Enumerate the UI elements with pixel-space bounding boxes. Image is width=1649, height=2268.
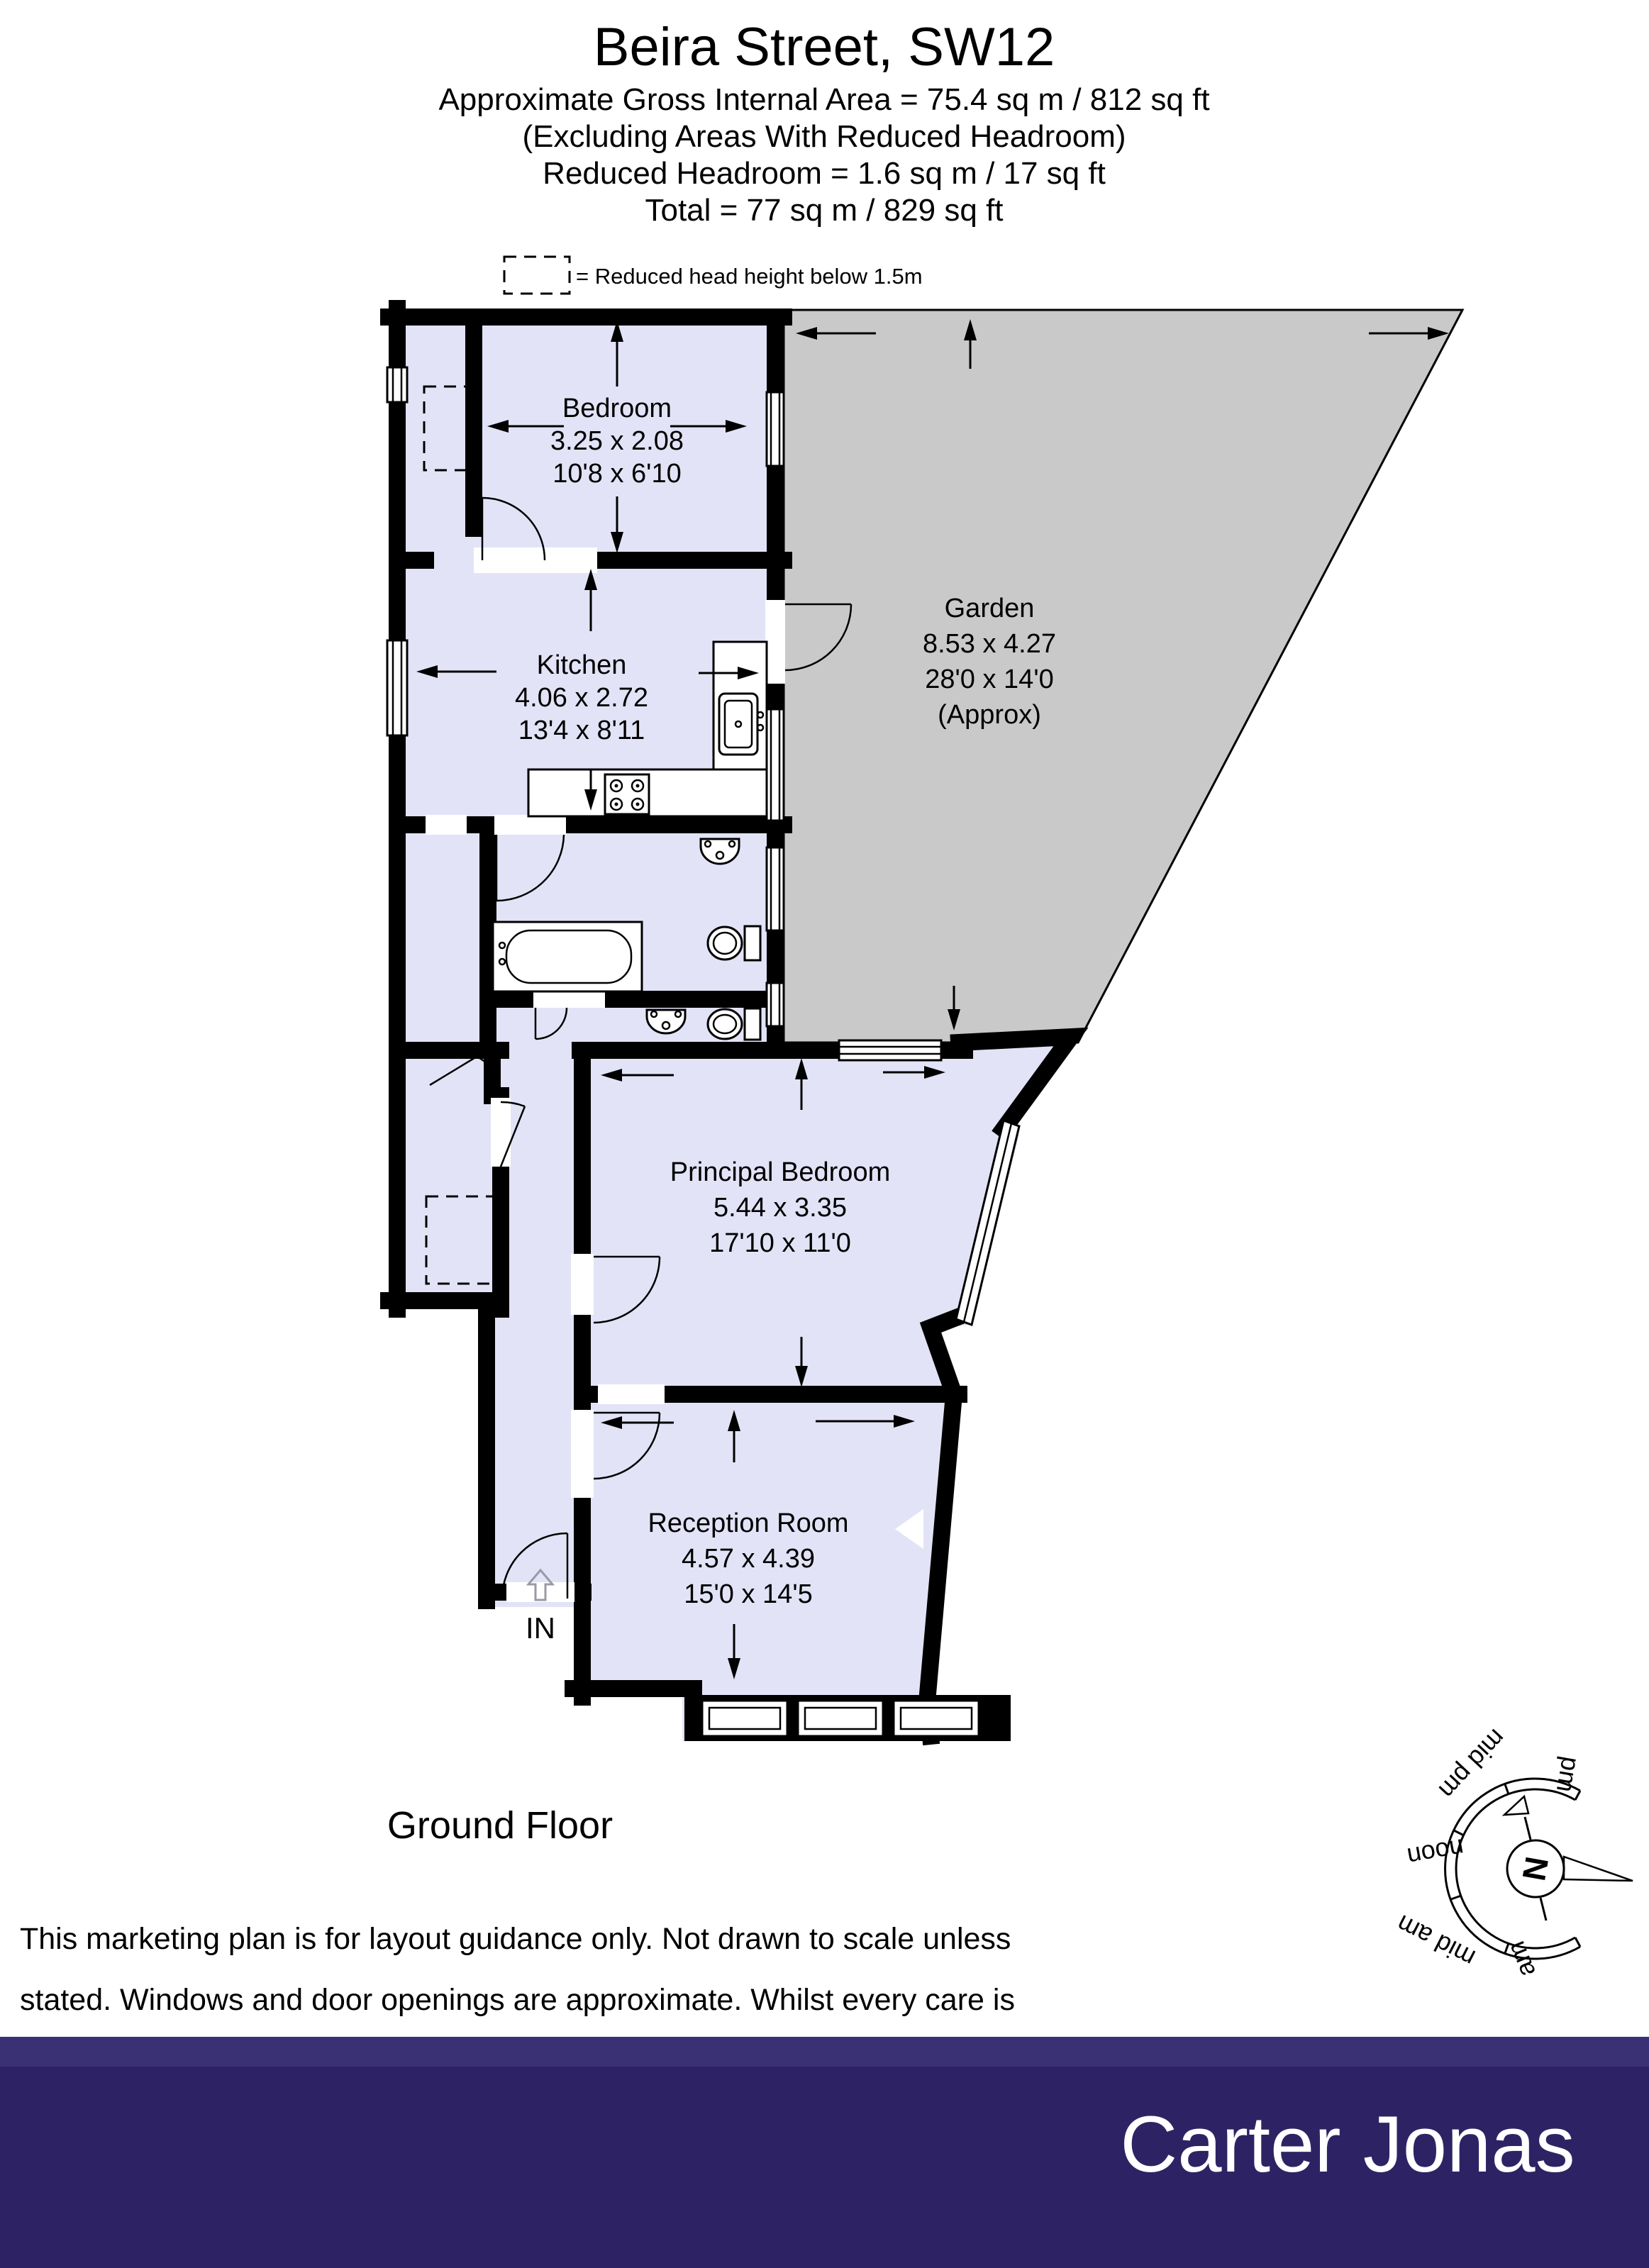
window-bay-1 — [702, 1701, 787, 1736]
compass-label-mid-pm: mid pm — [1433, 1723, 1511, 1804]
reception-room-name: Reception Room — [648, 1508, 848, 1538]
window-principal-bedroom-top — [839, 1040, 941, 1060]
legend-label: = Reduced head height below 1.5m — [576, 264, 923, 289]
bedroom-imperial: 10'8 x 6'10 — [553, 459, 681, 489]
window-bay-3 — [894, 1701, 979, 1736]
principal-bedroom-metric: 5.44 x 3.35 — [714, 1193, 847, 1223]
reception-room-metric: 4.57 x 4.39 — [682, 1544, 815, 1574]
garden-imperial: 28'0 x 14'0 — [925, 665, 1053, 694]
window-kitchen-left — [387, 640, 407, 735]
brand-logo: Carter Jonas — [1120, 2100, 1575, 2189]
compass-label-mid-am: mid am — [1392, 1909, 1479, 1973]
compass-label-pm: pm — [1551, 1755, 1586, 1794]
bedroom-name: Bedroom — [562, 394, 672, 423]
bath-icon — [493, 922, 642, 991]
kitchen-imperial: 13'4 x 8'11 — [518, 716, 645, 745]
toilet-icon — [708, 926, 760, 960]
legend: = Reduced head height below 1.5m — [504, 257, 923, 294]
subtitle-line-4: Total = 77 sq m / 829 sq ft — [645, 193, 1003, 228]
window-kitchen-right — [767, 709, 784, 821]
sink-icon — [647, 1010, 685, 1033]
entrance-hall-area — [495, 1309, 582, 1607]
compass-wedge-icon — [1504, 1796, 1528, 1815]
reception-room-imperial: 15'0 x 14'5 — [684, 1579, 812, 1609]
compass-rose: N pm mid pm noon mid am am — [1392, 1723, 1633, 1981]
window-bay-2 — [798, 1701, 883, 1736]
garden-note: (Approx) — [938, 700, 1041, 730]
window-bathroom-right — [767, 847, 784, 930]
subtitle-line-2: (Excluding Areas With Reduced Headroom) — [522, 119, 1126, 154]
floor-label: Ground Floor — [387, 1804, 613, 1847]
window-hall-left — [387, 367, 407, 402]
principal-bedroom-imperial: 17'10 x 11'0 — [709, 1228, 851, 1258]
footer-bar-top-strip — [0, 2037, 1649, 2067]
entrance-label: IN — [526, 1611, 555, 1645]
disclaimer-line-2: stated. Windows and door openings are ap… — [20, 1983, 1015, 2017]
legend-swatch-reduced-headroom — [504, 257, 570, 294]
window-bedroom-right — [767, 392, 784, 466]
footer: Carter Jonas — [0, 2037, 1649, 2268]
bedroom-metric: 3.25 x 2.08 — [550, 426, 684, 456]
sink-icon — [719, 694, 763, 755]
principal-bedroom-name: Principal Bedroom — [670, 1157, 890, 1187]
hob-icon — [605, 774, 649, 814]
north-needle-icon — [1564, 1857, 1633, 1881]
kitchen-metric: 4.06 x 2.72 — [515, 683, 648, 713]
window-wc-right — [767, 983, 784, 1026]
garden-area — [784, 310, 1462, 1043]
floorplan-page: Beira Street, SW12 Approximate Gross Int… — [0, 0, 1649, 2268]
toilet-icon — [708, 1008, 760, 1040]
kitchen-name: Kitchen — [537, 650, 627, 680]
floorplan-canvas: Beira Street, SW12 Approximate Gross Int… — [0, 0, 1649, 2268]
garden-metric: 8.53 x 4.27 — [923, 629, 1056, 659]
floor-plan: IN Bedroom 3.25 x 2.08 10'8 x 6'10 Kitch… — [387, 308, 1462, 1741]
bedroom-label: Bedroom 3.25 x 2.08 10'8 x 6'10 — [550, 394, 684, 489]
disclaimer-line-1: This marketing plan is for layout guidan… — [20, 1922, 1011, 1956]
garden-name: Garden — [945, 594, 1035, 623]
page-title: Beira Street, SW12 — [594, 17, 1055, 77]
header: Beira Street, SW12 Approximate Gross Int… — [438, 17, 1209, 228]
sink-icon — [701, 839, 739, 864]
subtitle-line-1: Approximate Gross Internal Area = 75.4 s… — [438, 82, 1209, 117]
subtitle-line-3: Reduced Headroom = 1.6 sq m / 17 sq ft — [543, 156, 1106, 191]
